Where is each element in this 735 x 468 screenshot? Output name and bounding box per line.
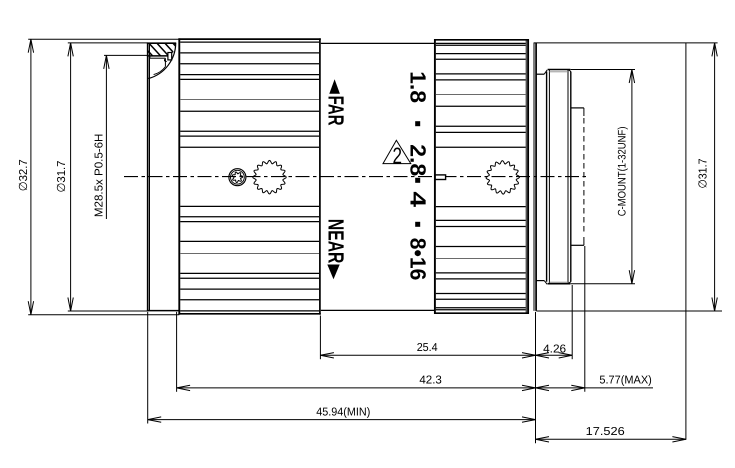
svg-text:NEAR: NEAR	[323, 219, 348, 264]
svg-text:4: 4	[405, 192, 430, 209]
svg-text:25.4: 25.4	[417, 342, 439, 354]
svg-text:5.77(MAX): 5.77(MAX)	[599, 375, 652, 387]
svg-text:M28.5x P0.5-6H: M28.5x P0.5-6H	[93, 134, 105, 218]
svg-text:45.94(MIN): 45.94(MIN)	[316, 407, 370, 419]
svg-text:∅31.7: ∅31.7	[697, 159, 709, 189]
svg-text:8•16: 8•16	[405, 238, 430, 280]
svg-text:17.526: 17.526	[586, 426, 625, 438]
svg-text:4.26: 4.26	[543, 344, 566, 356]
svg-text:2: 2	[392, 142, 402, 168]
svg-text:FAR: FAR	[323, 96, 348, 126]
svg-text:42.3: 42.3	[419, 375, 442, 387]
svg-text:∅32.7: ∅32.7	[18, 159, 30, 191]
svg-text:∅31.7: ∅31.7	[56, 161, 68, 193]
svg-text:2.8: 2.8	[405, 144, 430, 176]
svg-text:C-MOUNT(1-32UNF): C-MOUNT(1-32UNF)	[617, 127, 629, 217]
svg-text:1.8: 1.8	[405, 71, 430, 103]
